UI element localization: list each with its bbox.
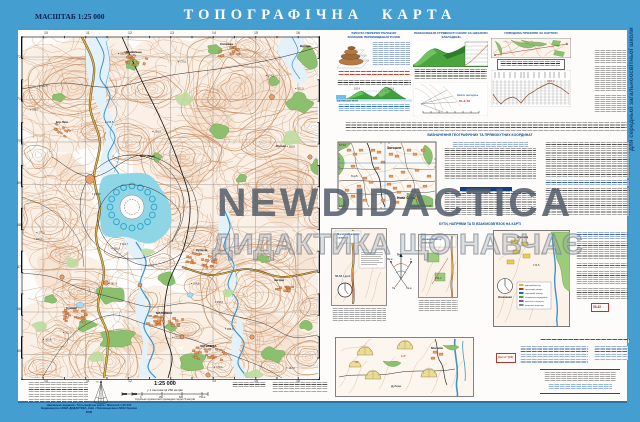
svg-text:Пд.м: Пд.м: [406, 287, 412, 289]
svg-text:Шкала закладень: Шкала закладень: [457, 93, 479, 97]
svg-text:поправка напряму: поправка напряму: [525, 305, 545, 307]
svg-text:192,4: 192,4: [354, 88, 361, 91]
svg-text:магнітний азимут: магнітний азимут: [525, 288, 543, 291]
svg-text:174,5: 174,5: [533, 263, 540, 267]
svg-text:Пн: Пн: [96, 382, 100, 384]
svg-text:дирекційний кут: дирекційний кут: [525, 284, 541, 287]
svg-text:БАЛТІЙСЬКЕ МОРЕ: БАЛТІЙСЬКЕ МОРЕ: [337, 100, 359, 103]
svg-text:зближення меридіанів: зближення меридіанів: [525, 296, 548, 299]
svg-text:48°: 48°: [355, 360, 359, 364]
svg-text:54°40′: 54°40′: [339, 143, 347, 147]
svg-text:Могилів: Могилів: [431, 346, 443, 350]
svg-text:Пд: Пд: [392, 287, 396, 289]
svg-text:справжній азимут: справжній азимут: [525, 292, 543, 295]
svg-text:201,8: 201,8: [388, 88, 395, 91]
svg-text:магнітне схилення: магнітне схилення: [525, 300, 545, 303]
svg-text:Затишне: Затишне: [387, 146, 402, 150]
svg-text:134,2: 134,2: [435, 276, 442, 280]
svg-text:258,3: 258,3: [547, 79, 555, 83]
svg-text:Дубове: Дубове: [391, 384, 402, 388]
svg-text:Означення: Означення: [498, 295, 512, 299]
svg-text:112°: 112°: [401, 354, 406, 358]
svg-text:58-62 і далі: 58-62 і далі: [335, 274, 351, 278]
svg-text:60+2=62: 60+2=62: [459, 99, 470, 103]
svg-text:Горб.: Горб.: [351, 174, 358, 178]
